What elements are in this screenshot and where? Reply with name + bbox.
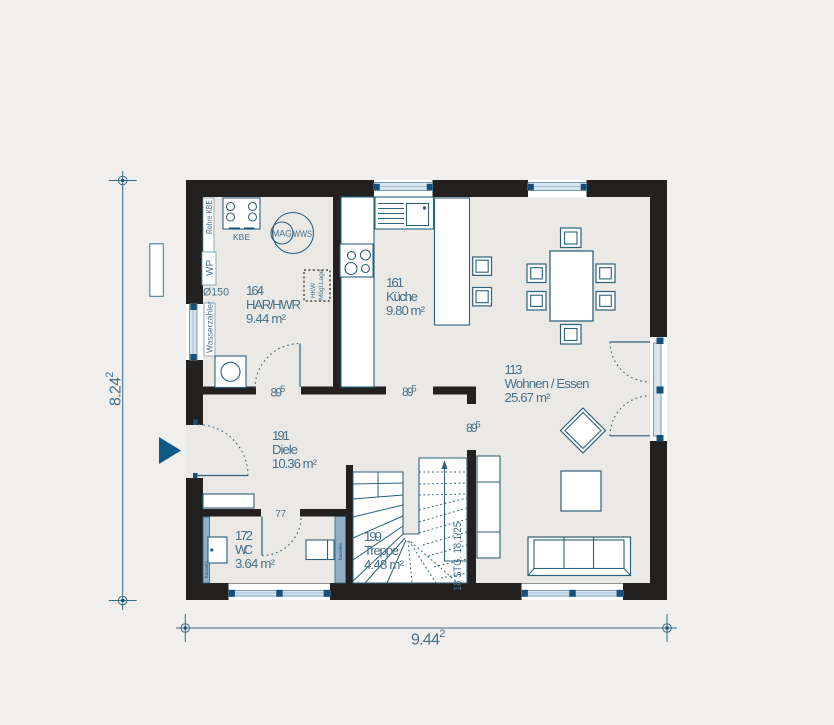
svg-text:18 STG. 18,1/25: 18 STG. 18,1/25 <box>452 522 464 591</box>
svg-text:WP: WP <box>205 260 216 276</box>
svg-text:Ø150: Ø150 <box>203 287 229 299</box>
svg-text:113: 113 <box>505 362 523 377</box>
svg-text:172: 172 <box>235 528 253 543</box>
svg-text:4.48 m²: 4.48 m² <box>364 557 405 572</box>
svg-text:25.67 m²: 25.67 m² <box>505 390 552 405</box>
svg-text:191: 191 <box>272 428 290 443</box>
svg-text:MAG: MAG <box>272 229 292 239</box>
svg-text:Wohnen / Essen: Wohnen / Essen <box>505 376 590 391</box>
svg-text:Treppe: Treppe <box>364 543 399 558</box>
svg-text:Rohre KBE: Rohre KBE <box>205 200 214 234</box>
svg-text:HAR/HWR: HAR/HWR <box>246 297 301 312</box>
svg-text:WC: WC <box>235 542 253 557</box>
svg-text:Küche: Küche <box>386 289 418 304</box>
svg-text:HKW: HKW <box>310 282 317 298</box>
svg-text:161: 161 <box>386 275 404 290</box>
svg-text:9.80 m²: 9.80 m² <box>386 303 426 318</box>
svg-text:199: 199 <box>364 529 382 544</box>
svg-text:Wasserzähler: Wasserzähler <box>205 301 215 353</box>
svg-text:77: 77 <box>276 508 287 520</box>
svg-text:Diele: Diele <box>272 442 298 457</box>
svg-text:KBE: KBE <box>233 232 250 242</box>
svg-text:164: 164 <box>246 283 264 298</box>
svg-text:9.44 m²: 9.44 m² <box>246 311 287 326</box>
svg-text:3.64 m²: 3.64 m² <box>235 556 276 571</box>
svg-text:Mögl.Lage: Mögl.Lage <box>318 269 325 300</box>
svg-text:WWS: WWS <box>293 229 312 239</box>
svg-text:bauseits: bauseits <box>338 542 343 560</box>
svg-text:10.36 m²: 10.36 m² <box>272 456 318 471</box>
